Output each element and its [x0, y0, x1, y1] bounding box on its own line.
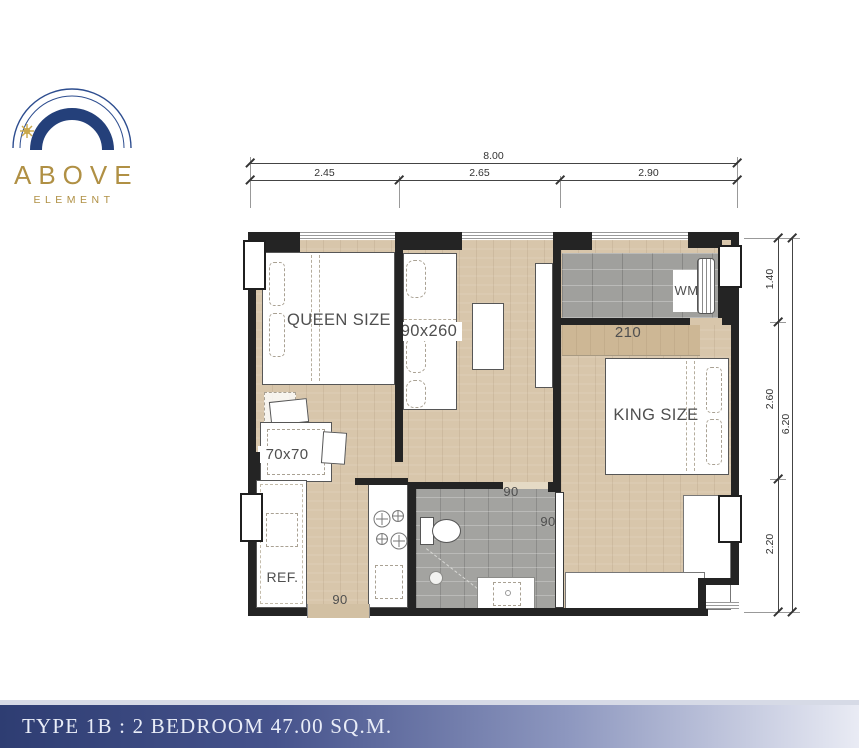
dim-total-width: 8.00	[250, 150, 737, 162]
washing-machine	[697, 258, 715, 314]
entry-door-label: 90	[320, 592, 360, 607]
dim-line	[250, 180, 737, 181]
wall-bath-left	[408, 482, 416, 613]
wall-bath-top-right	[548, 482, 561, 492]
window	[300, 232, 395, 240]
window	[462, 232, 553, 240]
dim-seg: 2.65	[399, 167, 560, 179]
unit-type-title: TYPE 1B : 2 BEDROOM 47.00 SQ.M.	[0, 705, 859, 748]
wall-queen-partition	[395, 240, 403, 462]
table-divider	[404, 319, 456, 321]
dim-seg: 2.60	[764, 381, 776, 417]
floor-plan: QUEEN SIZE 90x260 WM 210 KING SIZE	[248, 230, 740, 620]
chair	[406, 260, 426, 298]
wardrobe-bottom	[565, 572, 705, 610]
wall-bath-top	[408, 482, 503, 489]
dim-line	[250, 163, 737, 164]
column	[718, 495, 742, 543]
dim-line	[778, 238, 779, 612]
wall-pier	[260, 240, 300, 252]
wall-kitchen	[355, 478, 408, 485]
sink-drain	[505, 590, 511, 596]
dim-seg: 2.20	[764, 526, 776, 562]
dim-ext	[737, 157, 738, 208]
bedroom-door-label: 90	[533, 514, 563, 529]
chair	[406, 337, 426, 373]
dim-total-height: 6.20	[780, 406, 792, 442]
counter-detail	[375, 565, 403, 599]
brand-name: ABOVE	[14, 160, 139, 191]
wall-pier	[688, 240, 722, 248]
dim-ext	[250, 157, 251, 208]
dim-seg: 2.90	[560, 167, 737, 179]
pillow	[269, 262, 285, 306]
bathroom-vanity	[477, 577, 535, 610]
wall-jog-vertical	[698, 578, 706, 616]
window	[706, 602, 739, 609]
brand-logo: ABOVE ELEMENT	[8, 62, 140, 212]
queen-bed: QUEEN SIZE	[262, 252, 395, 385]
arch-logo-icon	[10, 74, 138, 156]
dim-ext	[560, 176, 561, 208]
wardrobe-length-label: 210	[603, 324, 653, 341]
dining-table-label: 90x260	[396, 322, 462, 341]
brand-subtitle: ELEMENT	[18, 194, 130, 206]
side-counter	[535, 263, 553, 388]
floorplan-page: ABOVE ELEMENT 8.00 2.45 2.65 2.90 1.	[0, 0, 859, 748]
small-table-label: 70x70	[258, 446, 316, 463]
tv-stand	[472, 303, 504, 370]
queen-bed-label: QUEEN SIZE	[285, 311, 393, 330]
wall-pier	[395, 240, 462, 250]
kitchen-sink	[266, 513, 298, 547]
pillow	[706, 367, 722, 413]
column	[718, 245, 742, 288]
sun-icon	[20, 124, 34, 138]
pillow	[269, 313, 285, 357]
chair	[321, 431, 347, 465]
dim-line	[792, 238, 793, 612]
stove-counter	[368, 482, 408, 608]
toilet-bowl	[432, 519, 461, 543]
wall-balcony	[555, 318, 690, 325]
washer-label: WM	[673, 283, 700, 298]
dim-seg: 2.45	[250, 167, 399, 179]
king-bed-label: KING SIZE	[606, 406, 706, 425]
wall-left-pier	[248, 452, 260, 480]
column	[240, 493, 263, 542]
shower-drain	[429, 571, 443, 585]
bedroom-door-leaf	[555, 492, 564, 608]
wall-king-partition	[553, 240, 561, 490]
washer-label-card: WM	[673, 270, 700, 312]
fridge-label: REF.	[257, 569, 308, 585]
footer-bar: TYPE 1B : 2 BEDROOM 47.00 SQ.M.	[0, 705, 859, 748]
chair	[406, 380, 426, 408]
dim-seg: 1.40	[764, 261, 776, 297]
kitchen-counter-left: REF.	[256, 480, 307, 608]
window	[592, 232, 688, 240]
king-bed: KING SIZE	[605, 358, 729, 475]
balcony-door-opening	[690, 318, 722, 325]
pillow	[706, 419, 722, 465]
dim-ext	[399, 176, 400, 208]
column	[243, 240, 266, 290]
stove-burners-icon	[371, 507, 407, 553]
bath-door-label: 90	[496, 484, 526, 499]
